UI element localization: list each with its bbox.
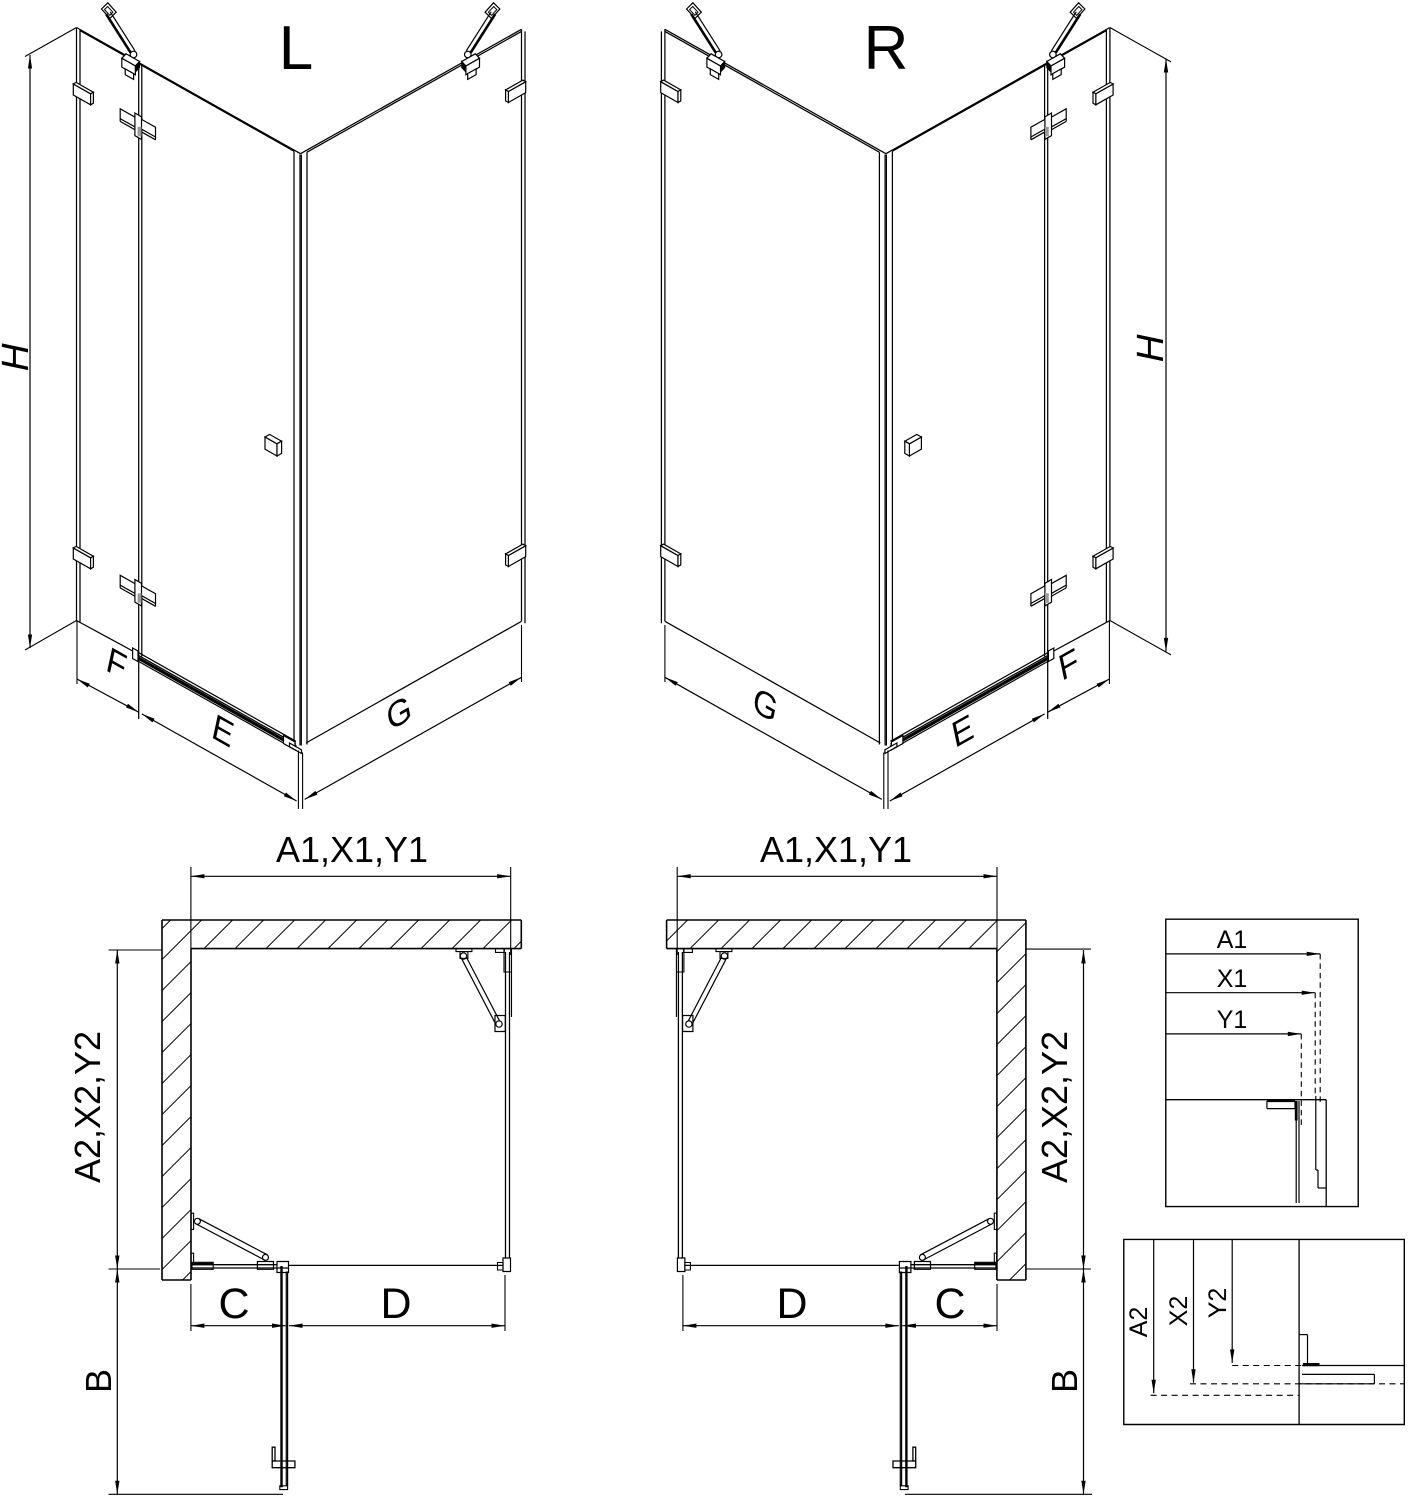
svg-text:X2: X2 bbox=[1165, 1296, 1193, 1327]
svg-text:A2: A2 bbox=[1125, 1307, 1153, 1338]
svg-text:A2,X2,Y2: A2,X2,Y2 bbox=[67, 1031, 108, 1183]
svg-text:B: B bbox=[1044, 1369, 1085, 1393]
svg-text:X1: X1 bbox=[1217, 965, 1248, 993]
svg-text:B: B bbox=[78, 1369, 119, 1393]
svg-text:D: D bbox=[776, 1280, 807, 1328]
svg-text:C: C bbox=[218, 1280, 249, 1328]
svg-text:A2,X2,Y2: A2,X2,Y2 bbox=[1034, 1031, 1075, 1183]
svg-text:C: C bbox=[934, 1280, 965, 1328]
svg-text:A1,X1,Y1: A1,X1,Y1 bbox=[276, 829, 428, 870]
svg-text:Y2: Y2 bbox=[1204, 1288, 1232, 1319]
svg-text:Y1: Y1 bbox=[1217, 1006, 1248, 1034]
svg-text:A1: A1 bbox=[1217, 926, 1248, 954]
svg-text:D: D bbox=[380, 1280, 411, 1328]
svg-text:A1,X1,Y1: A1,X1,Y1 bbox=[760, 829, 912, 870]
svg-text:L: L bbox=[279, 14, 313, 83]
svg-text:R: R bbox=[864, 14, 909, 83]
